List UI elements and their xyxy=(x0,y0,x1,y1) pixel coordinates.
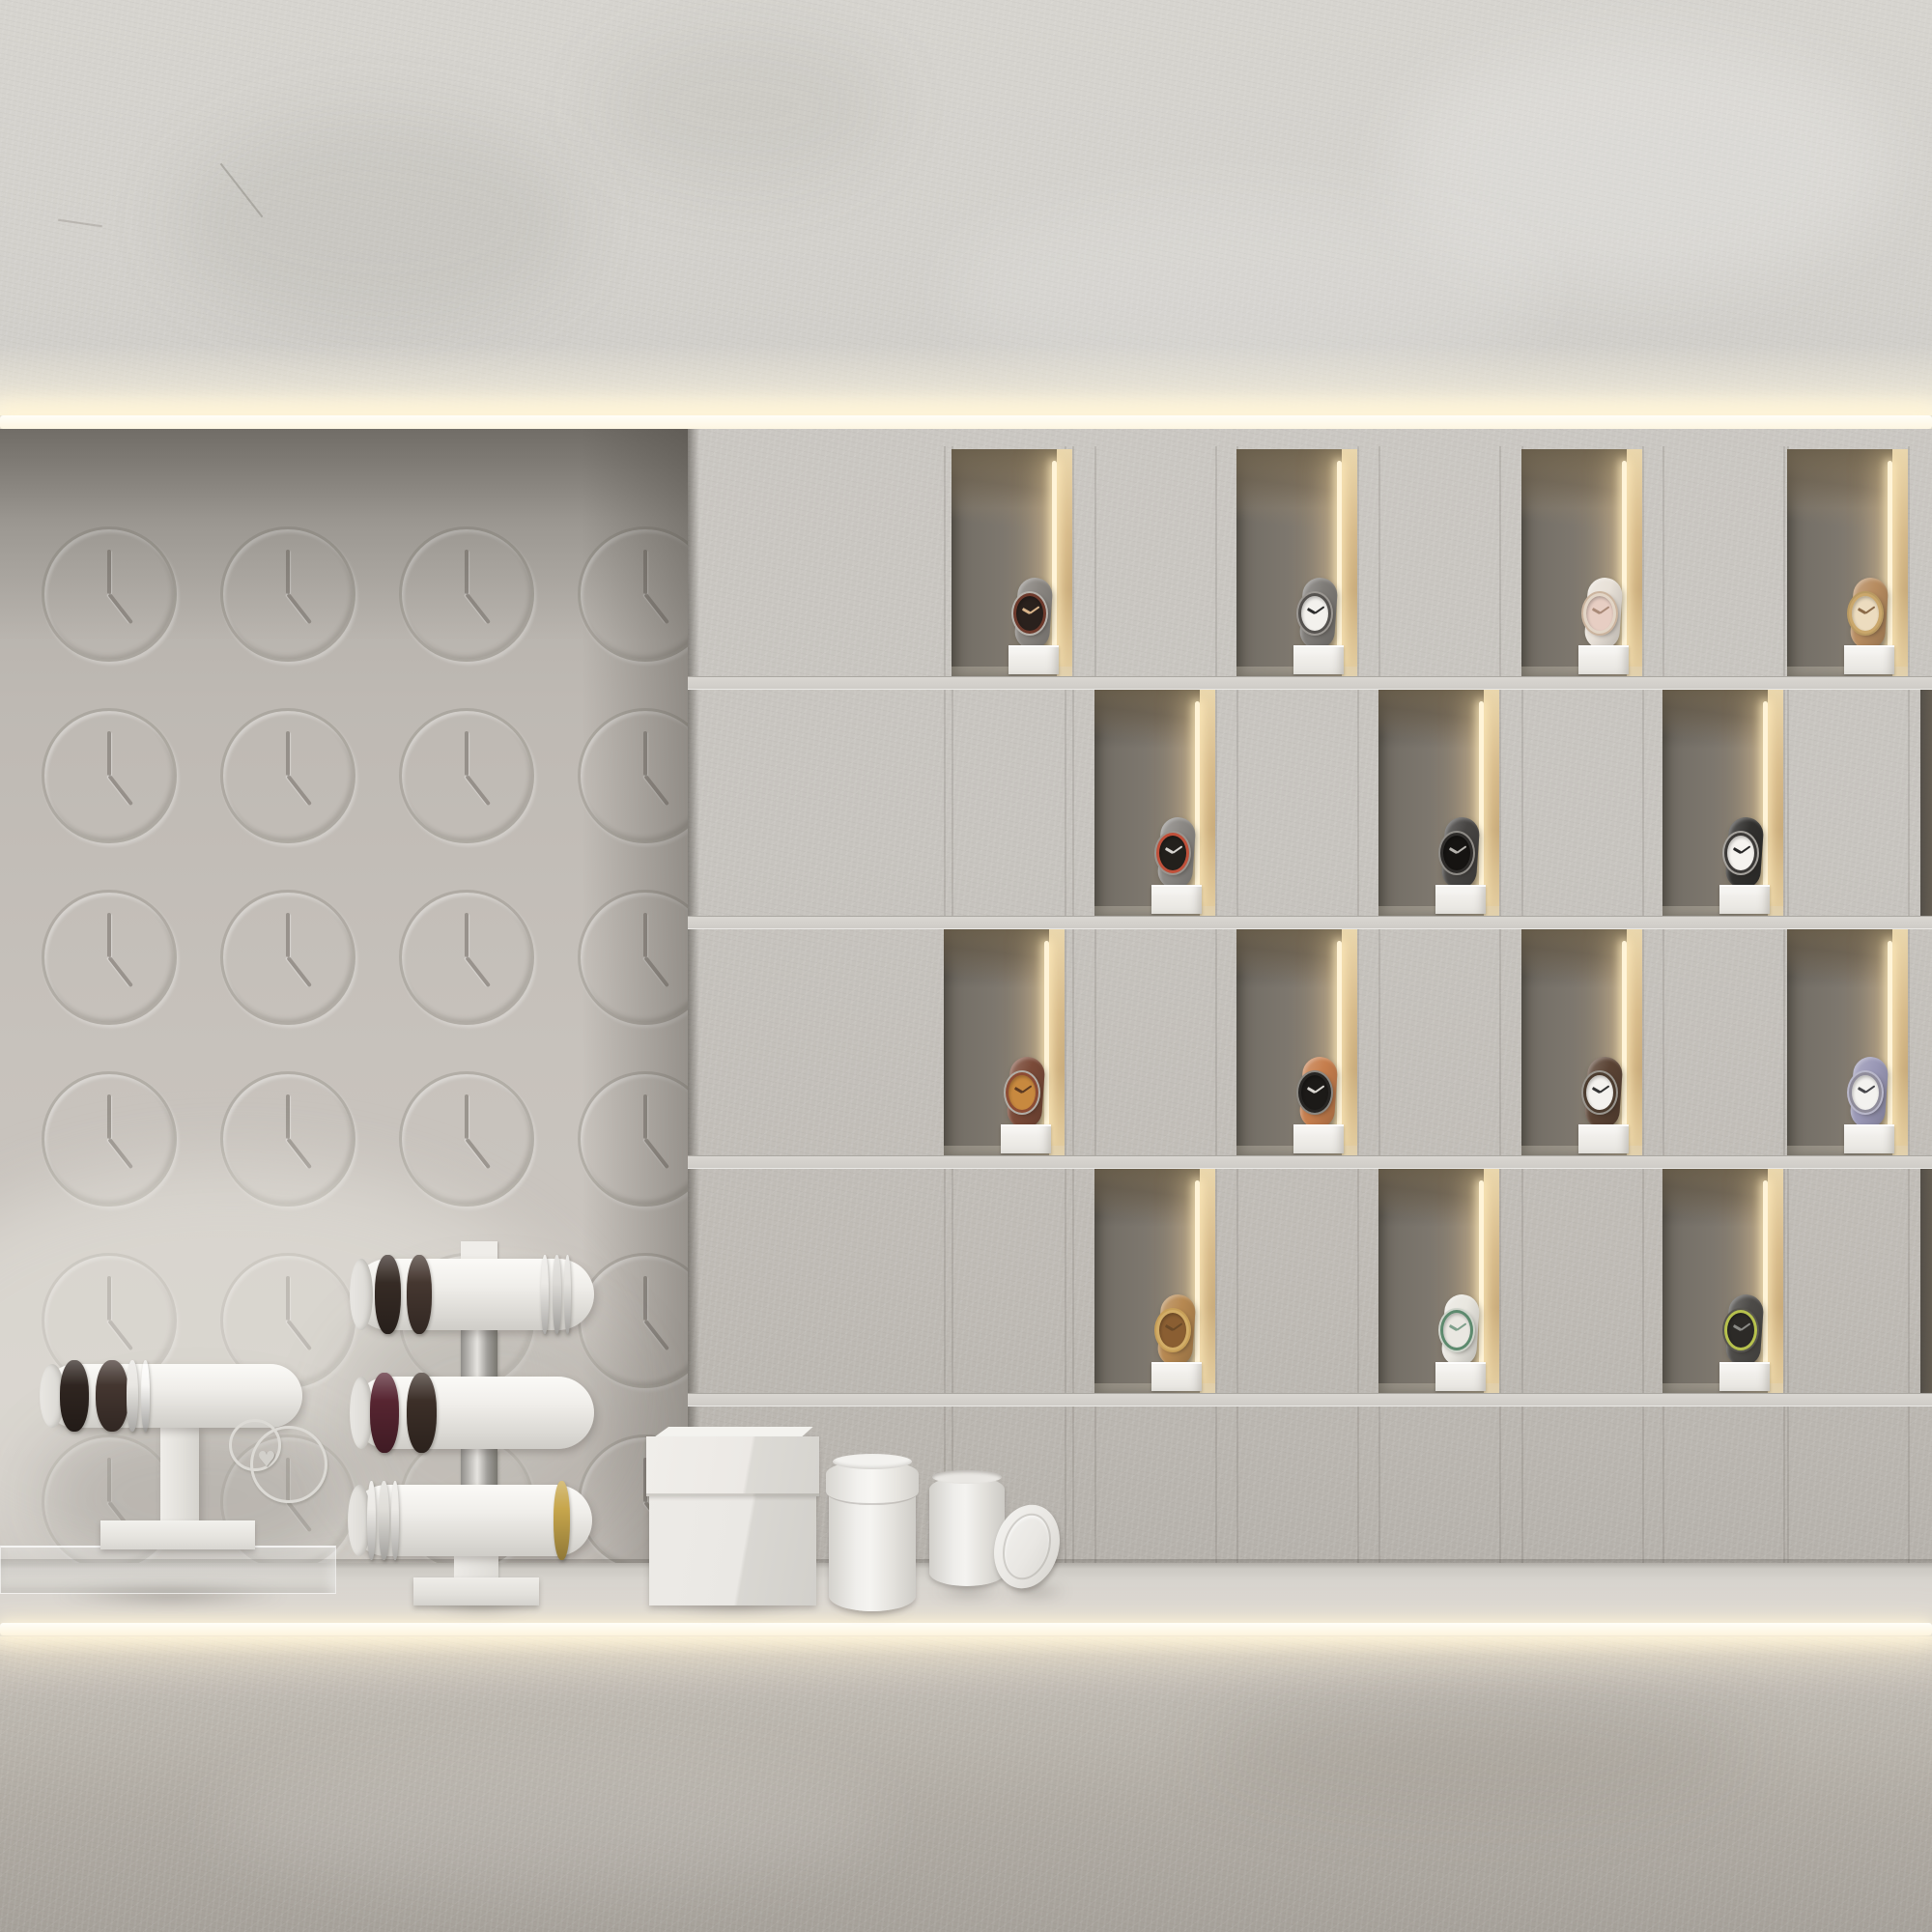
clock-hour-hand xyxy=(286,775,312,806)
watch-stand xyxy=(1719,885,1770,914)
acrylic-riser xyxy=(0,1546,336,1594)
wall-scratch xyxy=(58,219,102,227)
watch-stand xyxy=(1151,885,1202,914)
bangle xyxy=(553,1255,561,1334)
watch-face xyxy=(1013,593,1046,634)
watch-minute-hand xyxy=(1172,845,1182,854)
niche-side-wall xyxy=(1484,1169,1499,1393)
watch-minute-hand xyxy=(1456,1322,1466,1331)
canister xyxy=(929,1476,1005,1586)
niche-led-strip xyxy=(1479,701,1484,905)
wall-scratch xyxy=(220,163,264,217)
niche-side-wall xyxy=(1057,449,1072,676)
niche-side-wall xyxy=(1892,929,1908,1155)
edge-niche-sliver xyxy=(1920,690,1932,916)
watch-face xyxy=(1298,1072,1331,1113)
wall-led-glow xyxy=(0,344,1932,415)
shelf-niche xyxy=(952,449,1072,676)
watch-stand xyxy=(1435,1362,1486,1391)
clock-hour-hand xyxy=(465,1138,491,1169)
watch-face xyxy=(1849,593,1882,634)
tier-stand-base xyxy=(413,1577,539,1605)
watch-stand xyxy=(1844,1124,1894,1153)
wall-stain xyxy=(599,29,889,184)
clock-hour-hand xyxy=(465,775,491,806)
shelf-niche xyxy=(1094,690,1215,916)
watch-minute-hand xyxy=(1599,606,1609,614)
clock-minute-hand xyxy=(286,913,290,957)
clock-minute-hand xyxy=(286,731,290,776)
niche-side-wall xyxy=(1200,1169,1215,1393)
shelf-band xyxy=(688,1393,1932,1406)
counter-front xyxy=(0,1636,1932,1932)
clock-minute-hand xyxy=(107,1094,111,1139)
watch-face xyxy=(1440,1310,1473,1350)
clock-emboss xyxy=(42,708,177,843)
shelf-niche xyxy=(1662,690,1783,916)
bangle xyxy=(407,1255,432,1334)
bracelet-stand-base xyxy=(100,1520,255,1549)
shelf-band xyxy=(688,1155,1932,1169)
watch-stand xyxy=(1578,645,1629,674)
clock-minute-hand xyxy=(286,1094,290,1139)
shelf-niche xyxy=(1662,1169,1783,1393)
clock-hour-hand xyxy=(286,1138,312,1169)
clock-hour-hand xyxy=(107,1320,133,1350)
clock-hour-hand xyxy=(286,956,312,987)
clock-emboss xyxy=(220,1071,355,1207)
clock-minute-hand xyxy=(107,1276,111,1321)
shelf-niche xyxy=(1378,690,1499,916)
watch-stand xyxy=(1151,1362,1202,1391)
watch-minute-hand xyxy=(1029,606,1039,614)
watch-face xyxy=(1006,1072,1038,1113)
chrome-post xyxy=(461,1449,497,1485)
clock-emboss xyxy=(42,1071,177,1207)
bangle xyxy=(141,1360,150,1432)
watch-stand xyxy=(1435,885,1486,914)
niche-led-strip xyxy=(1763,1180,1768,1382)
bangle xyxy=(564,1255,571,1334)
bangle xyxy=(391,1481,399,1560)
bangle xyxy=(375,1255,401,1334)
watch-hour-hand xyxy=(1592,1087,1601,1094)
clock-hour-hand xyxy=(286,1320,312,1350)
shelf-niche xyxy=(1787,929,1908,1155)
watch-stand xyxy=(1009,645,1059,674)
watch-face xyxy=(1583,1072,1616,1113)
watch-stand xyxy=(1719,1362,1770,1391)
clock-hour-hand xyxy=(107,1138,133,1169)
recess-corner-shadow xyxy=(582,429,688,1563)
clock-hour-hand xyxy=(107,956,133,987)
bangle xyxy=(96,1360,128,1432)
niche-led-strip xyxy=(1888,941,1892,1145)
wall-stain xyxy=(1391,39,1893,290)
watch-face xyxy=(1156,1310,1189,1350)
bangle xyxy=(407,1373,437,1453)
canister xyxy=(829,1461,916,1611)
watch-face xyxy=(1298,593,1331,634)
watch-face xyxy=(1849,1072,1882,1113)
watch-stand xyxy=(1293,645,1344,674)
canister-opening xyxy=(932,1470,1002,1484)
clock-emboss xyxy=(220,890,355,1025)
shelf-niche xyxy=(1378,1169,1499,1393)
watch-hour-hand xyxy=(1858,608,1866,614)
edge-niche-sliver xyxy=(1920,1169,1932,1393)
watch-hour-hand xyxy=(1449,847,1458,854)
clock-hour-hand xyxy=(107,775,133,806)
niche-side-wall xyxy=(1768,690,1783,916)
watch-hour-hand xyxy=(1165,847,1174,854)
clock-hour-hand xyxy=(465,956,491,987)
clock-minute-hand xyxy=(107,731,111,776)
bangle xyxy=(370,1373,399,1453)
watch-minute-hand xyxy=(1021,1085,1032,1094)
watch-minute-hand xyxy=(1172,1322,1182,1331)
heart-pendant-icon: ♥ xyxy=(255,1449,278,1472)
watch-hour-hand xyxy=(1858,1087,1866,1094)
chrome-post xyxy=(461,1330,497,1377)
watch-minute-hand xyxy=(1864,606,1875,614)
clock-minute-hand xyxy=(465,731,469,776)
niche-led-strip xyxy=(1052,461,1057,666)
watch-hour-hand xyxy=(1014,1087,1023,1094)
niche-led-strip xyxy=(1888,461,1892,666)
niche-side-wall xyxy=(1627,449,1642,676)
niche-led-strip xyxy=(1763,701,1768,905)
watch-store-scene: ♥ xyxy=(0,0,1932,1932)
watch-minute-hand xyxy=(1740,845,1750,854)
bracelet-bar-endcap xyxy=(350,1259,373,1330)
watch-face xyxy=(1156,833,1189,873)
watch-stand xyxy=(1293,1124,1344,1153)
watch-stand xyxy=(1578,1124,1629,1153)
watch-hour-hand xyxy=(1733,1324,1742,1331)
canister-lid-top xyxy=(833,1454,912,1469)
clock-emboss xyxy=(399,890,534,1025)
clock-minute-hand xyxy=(107,1458,111,1502)
shelf-niche xyxy=(944,929,1065,1155)
clock-emboss xyxy=(399,708,534,843)
watch-minute-hand xyxy=(1740,1322,1750,1331)
wall-stain xyxy=(174,116,580,328)
niche-side-wall xyxy=(1049,929,1065,1155)
watch-minute-hand xyxy=(1314,606,1324,614)
niche-led-strip xyxy=(1195,1180,1200,1382)
clock-emboss xyxy=(220,708,355,843)
watch-hour-hand xyxy=(1592,608,1601,614)
bangle xyxy=(127,1360,138,1432)
watch-face xyxy=(1724,1310,1757,1350)
niche-led-strip xyxy=(1479,1180,1484,1382)
niche-led-strip xyxy=(1044,941,1049,1145)
tier-stand-top-clip xyxy=(461,1241,497,1259)
counter-front-texture xyxy=(0,1636,1932,1932)
clock-minute-hand xyxy=(107,913,111,957)
watch-stand xyxy=(1001,1124,1051,1153)
niche-side-wall xyxy=(1627,929,1642,1155)
niche-led-strip xyxy=(1622,461,1627,666)
watch-face xyxy=(1440,833,1473,873)
counter-front-stain xyxy=(213,1752,889,1888)
watch-face xyxy=(1583,593,1616,634)
shelf-niche xyxy=(1787,449,1908,676)
clock-emboss xyxy=(42,890,177,1025)
watch-hour-hand xyxy=(1307,1087,1316,1094)
counter-front-stain xyxy=(1207,1694,1748,1810)
gift-box-lid xyxy=(646,1436,819,1496)
bangle xyxy=(541,1255,549,1334)
bangle xyxy=(554,1481,570,1560)
niche-side-wall xyxy=(1484,690,1499,916)
niche-led-strip xyxy=(1195,701,1200,905)
gift-box xyxy=(649,1436,816,1605)
niche-led-strip xyxy=(1337,461,1342,666)
clock-hour-hand xyxy=(286,1501,312,1532)
clock-minute-hand xyxy=(465,1094,469,1139)
niche-side-wall xyxy=(1768,1169,1783,1393)
watch-hour-hand xyxy=(1733,847,1742,854)
niche-led-strip xyxy=(1622,941,1627,1145)
niche-side-wall xyxy=(1342,929,1357,1155)
bangle xyxy=(60,1360,89,1432)
niche-led-strip xyxy=(1337,941,1342,1145)
bangle xyxy=(379,1481,389,1560)
shelf-niche xyxy=(1094,1169,1215,1393)
display-shelving xyxy=(688,429,1932,1563)
niche-side-wall xyxy=(1342,449,1357,676)
watch-minute-hand xyxy=(1314,1085,1324,1094)
niche-side-wall xyxy=(1200,690,1215,916)
watch-minute-hand xyxy=(1864,1085,1875,1094)
watch-hour-hand xyxy=(1165,1324,1174,1331)
counter-led-strip xyxy=(0,1623,1932,1635)
shelf-niche xyxy=(1521,929,1642,1155)
clock-emboss xyxy=(399,1071,534,1207)
clock-minute-hand xyxy=(286,1276,290,1321)
watch-minute-hand xyxy=(1456,845,1466,854)
watch-hour-hand xyxy=(1449,1324,1458,1331)
clock-minute-hand xyxy=(465,913,469,957)
shelf-niche xyxy=(1236,929,1357,1155)
wall-led-strip xyxy=(0,415,1932,429)
shelf-niche xyxy=(1236,449,1357,676)
shelf-band xyxy=(688,916,1932,929)
watch-hour-hand xyxy=(1022,608,1031,614)
bangle xyxy=(367,1481,376,1560)
niche-side-wall xyxy=(1892,449,1908,676)
bracelet-stand-post xyxy=(160,1426,199,1524)
watch-face xyxy=(1724,833,1757,873)
watch-minute-hand xyxy=(1599,1085,1609,1094)
watch-hour-hand xyxy=(1307,608,1316,614)
watch-stand xyxy=(1844,645,1894,674)
shelf-niche xyxy=(1521,449,1642,676)
shelf-band xyxy=(688,676,1932,690)
